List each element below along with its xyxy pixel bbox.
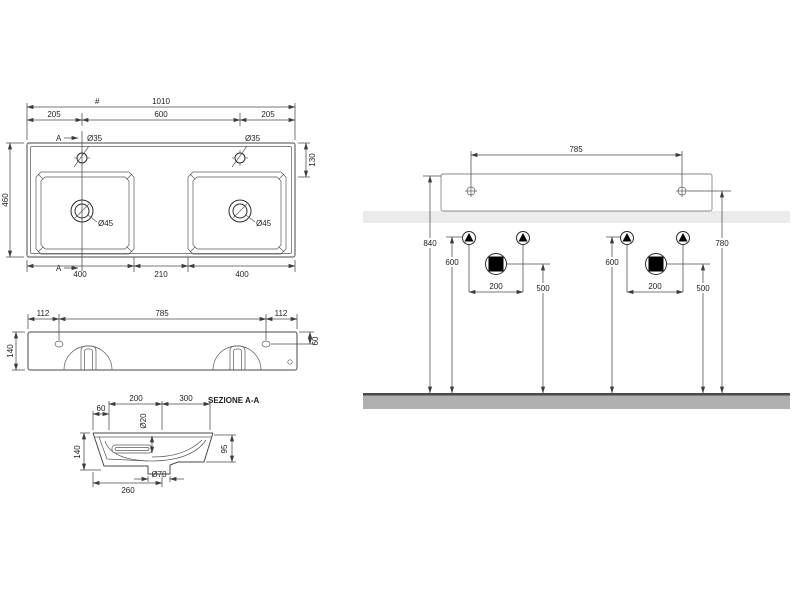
svg-text:400: 400	[73, 270, 87, 279]
fixing-hole-right-icon	[262, 341, 270, 347]
front-view: 112 785 112 140 60	[6, 309, 320, 370]
dim-drain-stub: Ø70	[134, 470, 184, 482]
svg-text:500: 500	[696, 284, 710, 293]
svg-text:112: 112	[37, 309, 50, 318]
dim-overall-depth: 460	[1, 143, 24, 257]
dim-bowl-depth: 95	[206, 435, 236, 462]
section-cut-line: A A	[56, 131, 82, 273]
svg-text:205: 205	[261, 110, 275, 119]
right-bowl	[188, 172, 286, 254]
svg-text:140: 140	[6, 344, 15, 358]
dim-supply-height-right: 600	[601, 237, 623, 393]
svg-text:1010: 1010	[152, 97, 170, 106]
dim-total-height: 840	[419, 176, 441, 393]
plan-view: A A Ø35 Ø35 Ø45	[1, 97, 317, 279]
faucet-hole-right-icon: Ø35	[232, 134, 261, 167]
basin-outline-top	[27, 143, 295, 257]
svg-text:840: 840	[423, 239, 437, 248]
water-supply-icon	[621, 232, 634, 245]
left-trap	[64, 346, 112, 370]
svg-text:95: 95	[220, 444, 229, 453]
dim-deck-depth: 130	[298, 143, 317, 177]
svg-text:140: 140	[73, 445, 82, 459]
dim-supply-height-left: 600	[441, 237, 463, 393]
water-supply-icon	[463, 232, 476, 245]
svg-text:112: 112	[275, 309, 288, 318]
faucet-hole-label: Ø35	[245, 134, 261, 143]
waste-drain-icon	[646, 254, 667, 275]
svg-text:130: 130	[308, 153, 317, 167]
left-bowl	[36, 172, 134, 254]
right-trap	[213, 346, 261, 370]
svg-text:400: 400	[235, 270, 249, 279]
right-connection-group: 600 200 500	[601, 232, 714, 394]
section-view: SEZIONE A-A 60 200 300	[73, 394, 259, 495]
svg-text:785: 785	[155, 309, 169, 318]
dim-front-height: 140	[6, 332, 25, 370]
section-letter-top: A	[56, 134, 62, 143]
installation-view: 785 840 780	[363, 145, 790, 409]
dim-hole-drop: 60	[271, 332, 320, 345]
small-hole-icon	[288, 360, 292, 364]
svg-text:200: 200	[489, 282, 503, 291]
basin-rim-top	[31, 147, 292, 254]
svg-text:60: 60	[97, 404, 106, 413]
dim-fixing-holes-front: 112 785 112	[28, 309, 297, 340]
dim-section-height: 140	[73, 433, 101, 470]
section-title: SEZIONE A-A	[208, 396, 259, 405]
svg-text:200: 200	[648, 282, 662, 291]
svg-text:200: 200	[129, 394, 143, 403]
dim-section-60: 60	[93, 404, 109, 430]
water-supply-icon	[517, 232, 530, 245]
svg-text:Ø70: Ø70	[151, 470, 167, 479]
svg-text:210: 210	[154, 270, 168, 279]
section-profile	[93, 433, 213, 474]
dim-drain-height-right: 500	[667, 264, 714, 393]
svg-text:460: 460	[1, 193, 10, 207]
svg-text:260: 260	[121, 486, 135, 495]
svg-text:300: 300	[179, 394, 193, 403]
water-supply-icon	[677, 232, 690, 245]
basin-front-silhouette	[441, 174, 712, 211]
floor-band	[363, 395, 790, 409]
svg-text:785: 785	[569, 145, 583, 154]
faucet-hole-label: Ø35	[87, 134, 103, 143]
drawing-canvas: A A Ø35 Ø35 Ø45	[0, 0, 800, 600]
section-letter-bottom: A	[56, 264, 62, 273]
svg-text:60: 60	[311, 336, 320, 345]
faucet-hole-left-icon: Ø35	[74, 134, 103, 167]
drain-right-icon: Ø45	[229, 200, 272, 228]
waste-drain-icon	[486, 254, 507, 275]
left-connection-group: 600 200 500	[441, 232, 554, 394]
svg-text:600: 600	[445, 258, 459, 267]
reference-mark: #	[95, 97, 100, 106]
svg-text:600: 600	[605, 258, 619, 267]
svg-text:600: 600	[154, 110, 168, 119]
svg-text:205: 205	[47, 110, 61, 119]
drain-label: Ø45	[256, 219, 272, 228]
basin-outline-front	[28, 332, 297, 370]
dim-drain-height-left: 500	[507, 264, 554, 393]
dim-faucet-spacing: 205 600 205	[27, 110, 295, 126]
drain-left-icon: Ø45	[71, 200, 114, 228]
floor-edge	[363, 393, 790, 396]
fixing-hole-left-icon	[55, 341, 63, 347]
dim-section-200-300: 200 300	[109, 394, 210, 430]
drain-label: Ø45	[98, 219, 114, 228]
technical-drawing-sheet: A A Ø35 Ø35 Ø45	[0, 0, 800, 600]
svg-text:780: 780	[715, 239, 729, 248]
svg-text:500: 500	[536, 284, 550, 293]
wall-band	[363, 211, 790, 223]
svg-text:Ø20: Ø20	[139, 413, 148, 429]
